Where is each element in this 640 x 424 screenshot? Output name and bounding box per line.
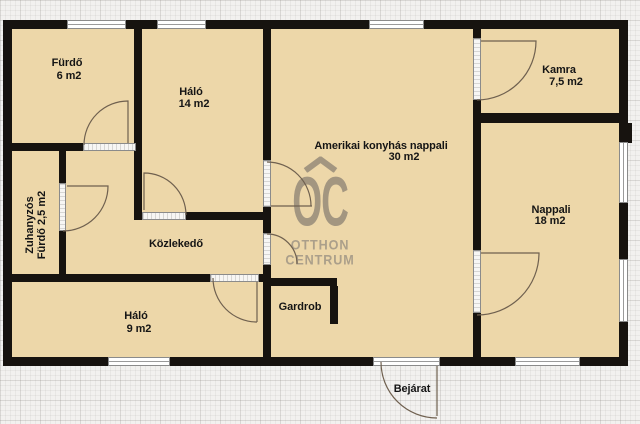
label-halo9-name: Háló	[124, 310, 147, 322]
door-furdo	[83, 143, 136, 151]
label-kozlekedo: Közlekedő	[149, 238, 203, 250]
wall-kamra-nappali	[481, 113, 619, 123]
label-amerikai-name: Amerikai konyhás nappali	[314, 140, 447, 152]
watermark-logo: OC OTTHON CENTRUM	[270, 157, 371, 268]
window-halo9-bottom	[108, 357, 170, 366]
door-zuhanyzos	[59, 183, 66, 231]
wall-living-left-lower	[263, 265, 271, 357]
door-kamra	[473, 38, 481, 100]
label-nappali-area: 18 m2	[535, 215, 566, 227]
label-furdo-name: Fürdő	[52, 57, 83, 69]
label-halo9-area: 9 m2	[127, 323, 152, 335]
door-halo9	[210, 274, 259, 282]
label-zuhanyzos: Zuhanyzós Fürdő 2,5 m2	[24, 191, 48, 259]
watermark-word-centrum: CENTRUM	[285, 253, 354, 268]
floorplan-canvas: OC OTTHON CENTRUM Fürdő 6 m2 Háló 14 m2 …	[0, 0, 640, 424]
label-gardrob: Gardrob	[279, 301, 322, 313]
door-nappali	[473, 250, 481, 313]
wall-living-right-upper	[473, 29, 481, 38]
window-nappali-right-upper	[619, 142, 628, 203]
label-halo14-name: Háló	[179, 86, 202, 98]
label-zuhanyzos-name: Zuhanyzós	[24, 191, 36, 259]
wall-living-right-mid	[473, 100, 481, 250]
door-kozlekedo-living	[263, 233, 271, 265]
wall-pillar-right	[619, 123, 632, 143]
wall-gardrob-right	[330, 286, 338, 324]
wall-halo14-bottom	[186, 212, 271, 220]
wall-zuhanyzos-right-upper	[59, 151, 66, 183]
wall-furdo-bottom	[12, 143, 83, 151]
window-furdo	[67, 20, 126, 29]
watermark-word-otthon: OTTHON	[291, 238, 350, 253]
label-amerikai-area: 30 m2	[389, 151, 420, 163]
wall-living-right-lower	[473, 313, 481, 357]
door-halo14-living	[263, 160, 271, 207]
window-living	[369, 20, 424, 29]
wall-living-left-upper	[263, 29, 271, 160]
label-kamra-name: Kamra	[542, 64, 576, 76]
label-furdo-area: 6 m2	[57, 70, 82, 82]
wall-corridor-bottom	[12, 274, 210, 282]
wall-living-left-mid	[263, 207, 271, 233]
door-halo14	[142, 212, 186, 220]
label-halo14-area: 14 m2	[179, 98, 210, 110]
label-bejarat: Bejárat	[394, 383, 431, 395]
label-kamra-area: 7,5 m2	[549, 76, 583, 88]
window-nappali-right-lower	[619, 259, 628, 322]
wall-furdo-halo14	[134, 29, 142, 220]
window-nappali-bottom	[515, 357, 580, 366]
watermark-symbol: OC	[292, 175, 348, 229]
door-bejarat-threshold	[373, 357, 440, 366]
wall-gardrob-top	[271, 278, 337, 286]
window-halo14	[157, 20, 206, 29]
label-zuhanyzos-area: Fürdő 2,5 m2	[36, 191, 48, 259]
